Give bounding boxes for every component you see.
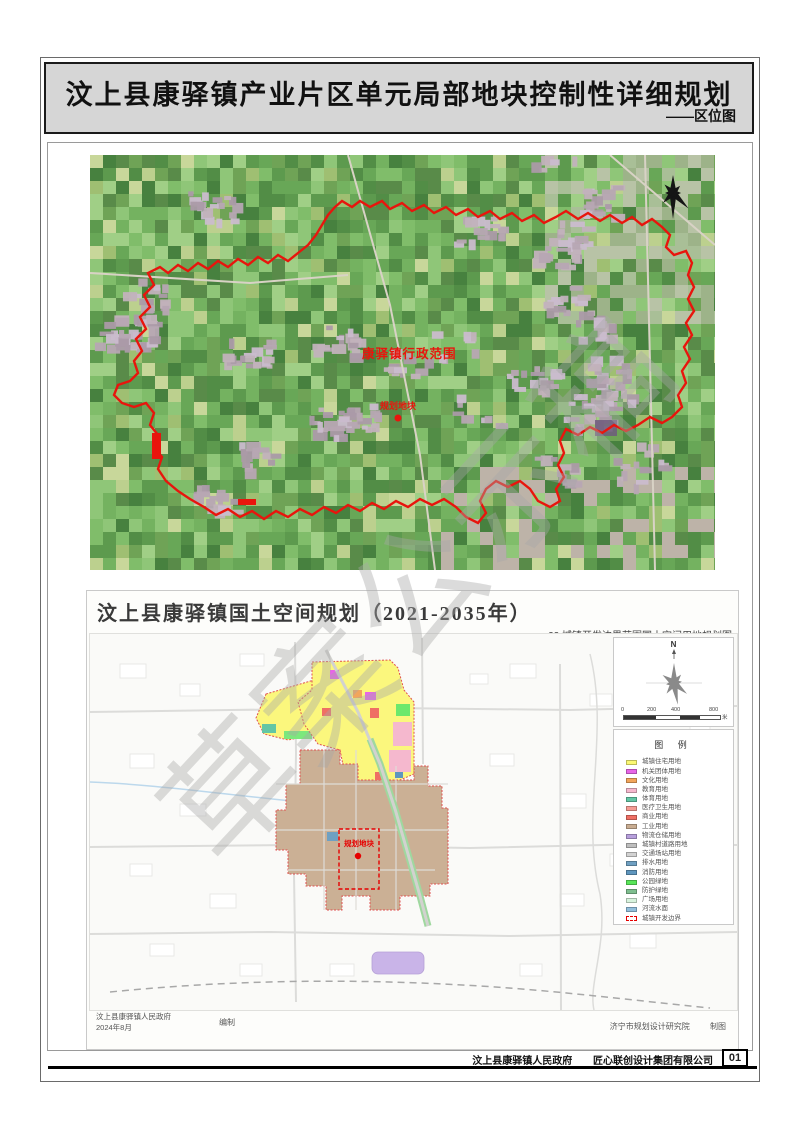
- legend-label: 城镇村道路用地: [642, 842, 688, 849]
- credits-left-org: 汶上县康驿镇人民政府: [96, 1011, 171, 1022]
- legend-swatch: [626, 824, 637, 829]
- legend-item: 物流仓储用地: [626, 832, 733, 841]
- legend: 图 例 城镇住宅用地机关团体用地文化用地教育用地体育用地医疗卫生用地商业用地工业…: [613, 729, 734, 925]
- legend-swatch: [626, 898, 637, 903]
- legend-label: 排水用地: [642, 860, 668, 867]
- legend-label: 教育用地: [642, 787, 668, 794]
- legend-label: 物流仓储用地: [642, 833, 681, 840]
- legend-item: 机关团体用地: [626, 767, 733, 776]
- scale-unit: 米: [722, 713, 728, 721]
- legend-item: 教育用地: [626, 786, 733, 795]
- scale-tick: 800: [709, 707, 718, 713]
- plot-label-satellite: 规划地块: [380, 400, 417, 411]
- legend-swatch: [626, 861, 637, 866]
- region-label: 康驿镇行政范围: [362, 346, 457, 361]
- header: 汶上县康驿镇产业片区单元局部地块控制性详细规划 ——区位图: [44, 62, 754, 134]
- legend-item: 城镇开发边界: [626, 914, 733, 923]
- footer-org-government: 汶上县康驿镇人民政府: [472, 1056, 572, 1067]
- legend-swatch: [626, 788, 637, 793]
- footer-org-design: 匠心联创设计集团有限公司: [593, 1056, 713, 1067]
- scale-tick: 0: [621, 707, 624, 713]
- legend-items: 城镇住宅用地机关团体用地文化用地教育用地体育用地医疗卫生用地商业用地工业用地物流…: [626, 758, 733, 923]
- footer-orgs: 汶上县康驿镇人民政府 匠心联创设计集团有限公司: [454, 1052, 713, 1067]
- legend-item: 广场用地: [626, 896, 733, 905]
- legend-swatch: [626, 769, 637, 774]
- legend-item: 防护绿地: [626, 887, 733, 896]
- page-number: 01: [722, 1049, 748, 1067]
- scale-tick: 200: [647, 707, 656, 713]
- page-subtitle: ——区位图: [666, 106, 736, 126]
- legend-item: 工业用地: [626, 822, 733, 831]
- legend-label: 医疗卫生用地: [642, 805, 681, 812]
- legend-swatch: [626, 778, 637, 783]
- compass-rose-icon: [663, 175, 688, 219]
- legend-label: 河流水面: [642, 906, 668, 913]
- satellite-overlay: 康驿镇行政范围 规划地块: [90, 155, 715, 570]
- legend-swatch: [626, 760, 637, 765]
- legend-swatch: [626, 907, 637, 912]
- legend-swatch: [626, 834, 637, 839]
- page-title: 汶上县康驿镇产业片区单元局部地块控制性详细规划: [46, 73, 752, 112]
- legend-label: 工业用地: [642, 824, 668, 831]
- legend-label: 防护绿地: [642, 888, 668, 895]
- credits-left: 汶上县康驿镇人民政府 2024年8月: [96, 1011, 171, 1034]
- legend-label: 交通场站用地: [642, 851, 681, 858]
- scale-bar: 0 200 400 800 米: [621, 707, 731, 721]
- legend-swatch: [626, 870, 637, 875]
- legend-item: 体育用地: [626, 795, 733, 804]
- legend-swatch: [626, 806, 637, 811]
- legend-item: 文化用地: [626, 776, 733, 785]
- credits-right-org: 济宁市规划设计研究院: [610, 1022, 690, 1031]
- legend-item: 公园绿地: [626, 877, 733, 886]
- legend-item: 交通场站用地: [626, 850, 733, 859]
- legend-label: 消防用地: [642, 870, 668, 877]
- legend-swatch: [626, 889, 637, 894]
- legend-item: 河流水面: [626, 905, 733, 914]
- legend-label: 文化用地: [642, 778, 668, 785]
- legend-item: 消防用地: [626, 868, 733, 877]
- credits-right: 济宁市规划设计研究院 制图: [592, 1021, 726, 1032]
- compass-scale-box: N 0 200 400 800 米: [613, 637, 734, 727]
- scale-tick: 400: [671, 707, 680, 713]
- boundary-thick-segment: [238, 499, 256, 505]
- legend-label: 广场用地: [642, 897, 668, 904]
- legend-label: 公园绿地: [642, 879, 668, 886]
- legend-swatch: [626, 797, 637, 802]
- plan-title: 汶上县康驿镇国土空间规划（2021-2035年）: [97, 597, 532, 626]
- scale-bar-segments: [623, 715, 721, 720]
- landuse-plan-panel: 汶上县康驿镇国土空间规划（2021-2035年） 22 城镇开发边界范围国土空间…: [86, 590, 739, 1050]
- planning-document-page: 汶上县康驿镇产业片区单元局部地块控制性详细规划 ——区位图 康驿镇行政范围 规划…: [0, 0, 800, 1131]
- legend-item: 医疗卫生用地: [626, 804, 733, 813]
- legend-label: 机关团体用地: [642, 769, 681, 776]
- legend-item: 城镇村道路用地: [626, 841, 733, 850]
- credits-right-role: 制图: [710, 1022, 726, 1031]
- satellite-map: 康驿镇行政范围 规划地块: [90, 155, 715, 570]
- legend-swatch: [626, 916, 637, 921]
- plot-dot-satellite: [395, 415, 402, 422]
- legend-label: 商业用地: [642, 814, 668, 821]
- footer: 汶上县康驿镇人民政府 匠心联创设计集团有限公司 01: [48, 1049, 757, 1069]
- legend-item: 商业用地: [626, 813, 733, 822]
- credits-left-role: 编制: [219, 1017, 235, 1028]
- legend-item: 城镇住宅用地: [626, 758, 733, 767]
- legend-label: 体育用地: [642, 796, 668, 803]
- plot-label-plan: 规划地块: [344, 838, 374, 848]
- plot-dot-plan: [355, 853, 361, 859]
- town-boundary-outline: [114, 201, 694, 523]
- north-label: N: [614, 640, 733, 649]
- wind-rose-icon: [644, 649, 704, 707]
- legend-swatch: [626, 815, 637, 820]
- legend-swatch: [626, 843, 637, 848]
- legend-swatch: [626, 880, 637, 885]
- legend-item: 排水用地: [626, 859, 733, 868]
- logistics-area: [372, 952, 424, 974]
- credits-left-date: 2024年8月: [96, 1022, 171, 1033]
- legend-swatch: [626, 852, 637, 857]
- legend-title: 图 例: [614, 738, 733, 751]
- legend-label: 城镇住宅用地: [642, 759, 681, 766]
- legend-label: 城镇开发边界: [642, 916, 681, 923]
